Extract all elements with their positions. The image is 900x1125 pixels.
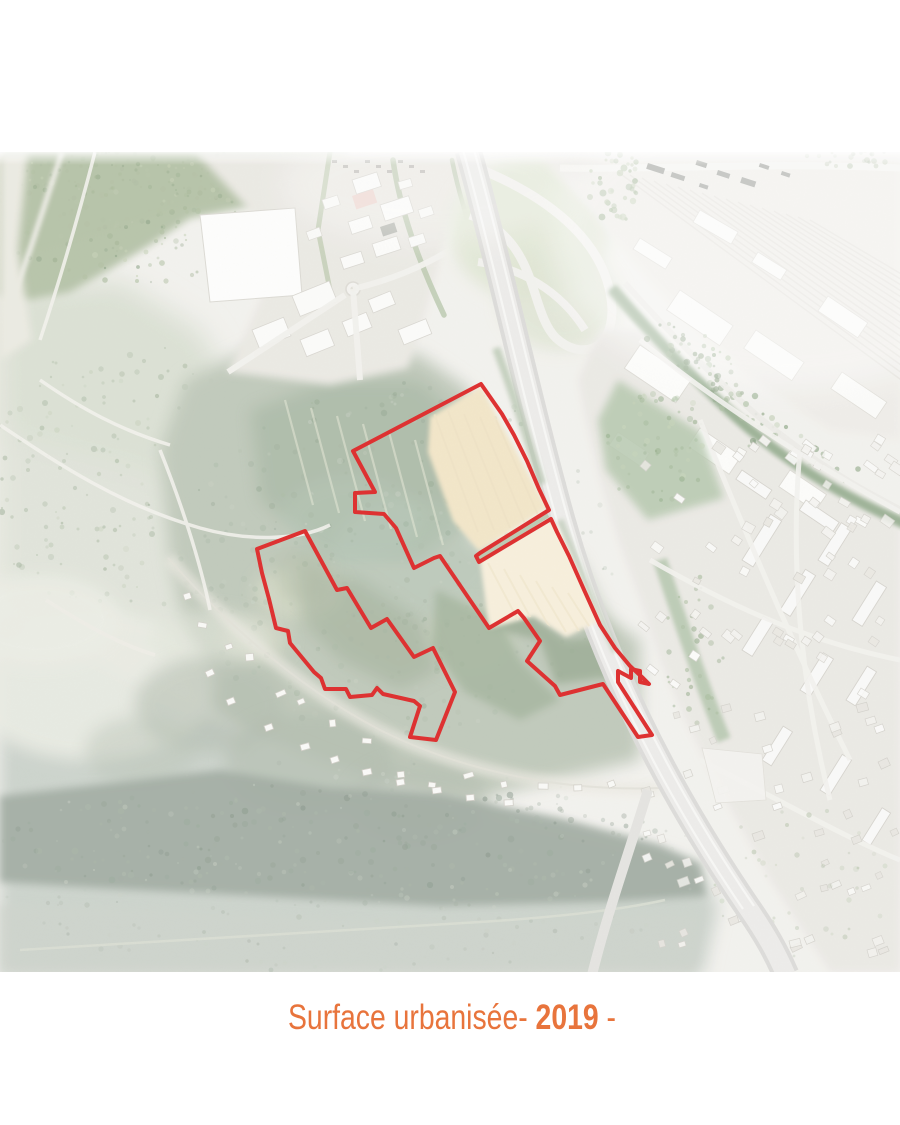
svg-text:Surface urbanisée- 2019 -: Surface urbanisée- 2019 - <box>288 998 616 1037</box>
